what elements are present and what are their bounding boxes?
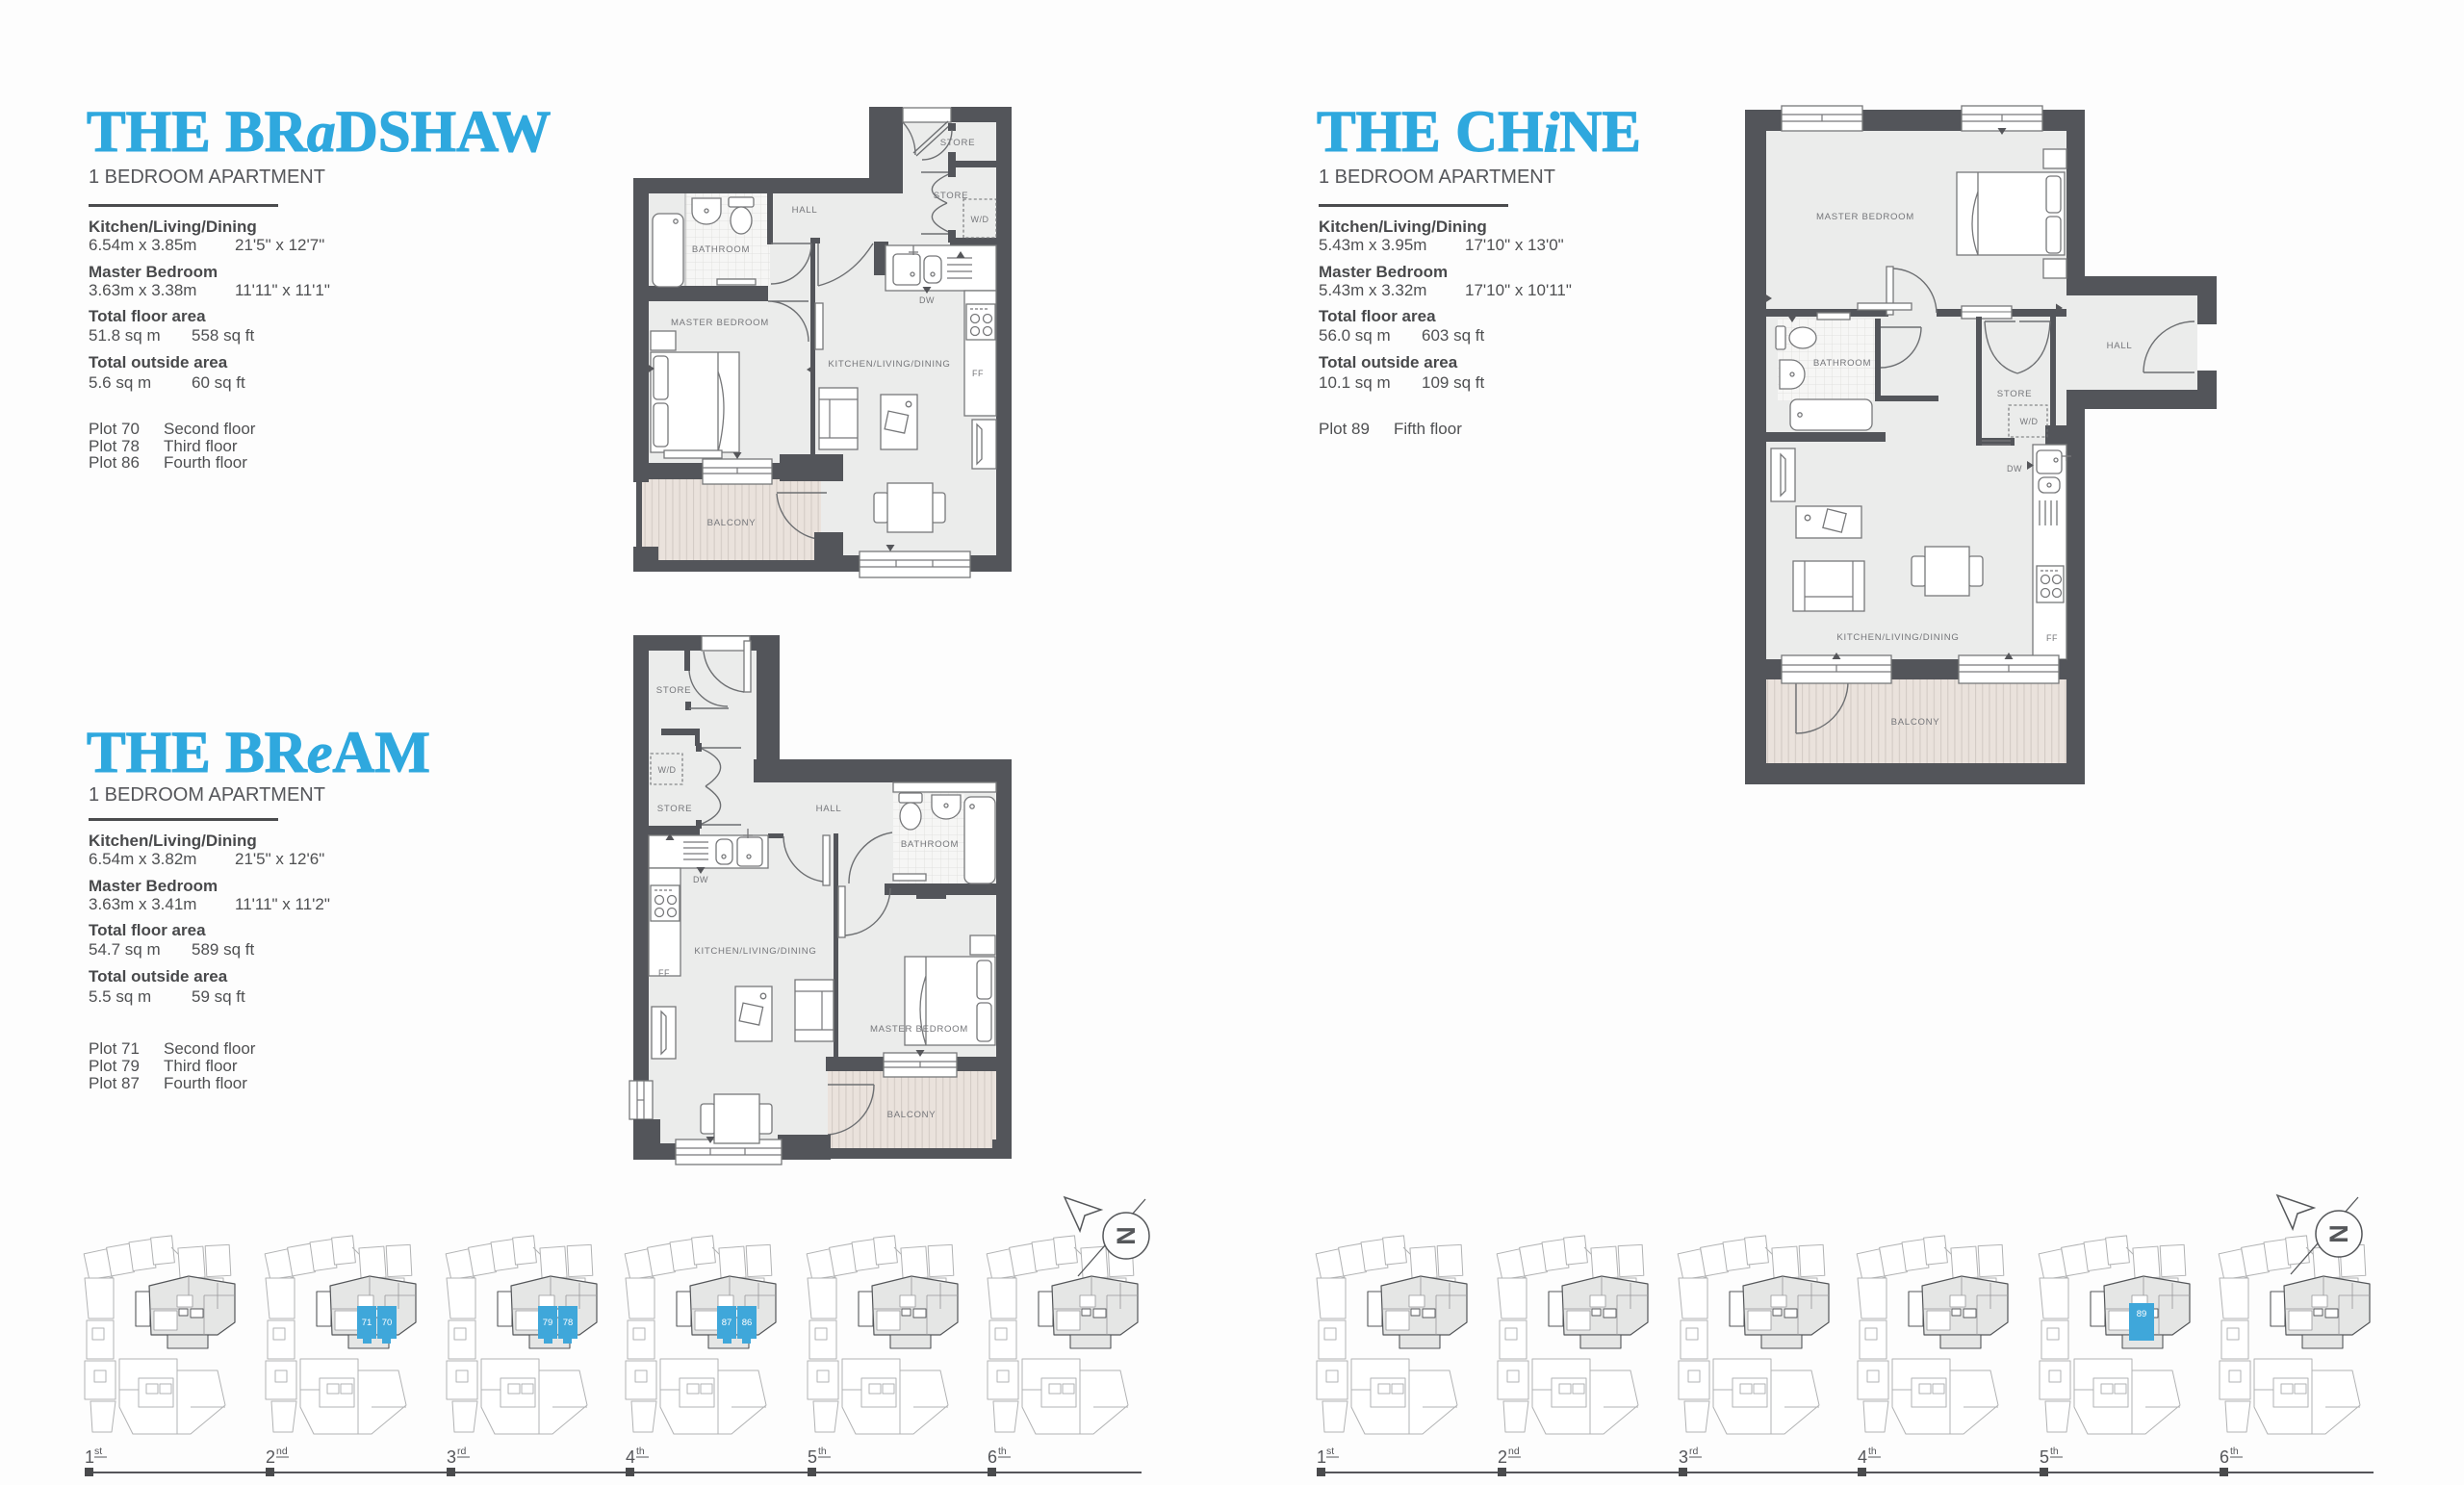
- svg-text:FF: FF: [2046, 633, 2058, 643]
- svg-text:th: th: [2230, 1446, 2239, 1457]
- svg-text:STORE: STORE: [657, 804, 692, 814]
- svg-text:STORE: STORE: [934, 191, 968, 201]
- svg-text:th: th: [998, 1446, 1007, 1457]
- svg-text:HALL: HALL: [2107, 341, 2133, 351]
- svg-text:STORE: STORE: [1997, 389, 2032, 399]
- svg-text:nd: nd: [1508, 1446, 1520, 1457]
- svg-text:5: 5: [808, 1447, 817, 1467]
- svg-text:rd: rd: [1689, 1446, 1698, 1457]
- svg-text:STORE: STORE: [656, 685, 691, 696]
- svg-text:BALCONY: BALCONY: [1891, 717, 1940, 728]
- svg-text:BATHROOM: BATHROOM: [901, 839, 959, 850]
- svg-text:2: 2: [266, 1447, 275, 1467]
- svg-text:nd: nd: [276, 1446, 288, 1457]
- svg-text:5: 5: [2040, 1447, 2049, 1467]
- svg-text:N: N: [2324, 1224, 2353, 1243]
- svg-text:W/D: W/D: [658, 765, 677, 775]
- svg-text:MASTER BEDROOM: MASTER BEDROOM: [1816, 212, 1914, 222]
- svg-text:3: 3: [1679, 1447, 1688, 1467]
- svg-text:DW: DW: [919, 295, 935, 305]
- svg-text:86: 86: [742, 1318, 753, 1328]
- svg-text:th: th: [2050, 1446, 2059, 1457]
- svg-text:6: 6: [988, 1447, 997, 1467]
- svg-text:W/D: W/D: [2020, 417, 2039, 426]
- svg-text:BATHROOM: BATHROOM: [692, 244, 750, 255]
- svg-text:th: th: [818, 1446, 827, 1457]
- svg-text:th: th: [1868, 1446, 1877, 1457]
- svg-text:FF: FF: [972, 369, 984, 378]
- svg-text:6: 6: [2220, 1447, 2229, 1467]
- svg-text:DW: DW: [2007, 464, 2022, 474]
- svg-text:st: st: [1326, 1446, 1334, 1457]
- svg-text:MASTER BEDROOM: MASTER BEDROOM: [671, 318, 769, 328]
- svg-text:th: th: [636, 1446, 645, 1457]
- svg-text:KITCHEN/LIVING/DINING: KITCHEN/LIVING/DINING: [1836, 632, 1959, 643]
- svg-text:rd: rd: [457, 1446, 466, 1457]
- svg-text:3: 3: [447, 1447, 456, 1467]
- svg-text:STORE: STORE: [940, 138, 975, 148]
- svg-text:st: st: [94, 1446, 102, 1457]
- svg-text:4: 4: [1858, 1447, 1867, 1467]
- svg-text:89: 89: [2137, 1309, 2147, 1319]
- svg-text:BATHROOM: BATHROOM: [1813, 358, 1871, 369]
- svg-text:71: 71: [362, 1318, 372, 1328]
- svg-text:1: 1: [1317, 1447, 1326, 1467]
- svg-text:70: 70: [382, 1318, 393, 1328]
- svg-text:BALCONY: BALCONY: [887, 1110, 937, 1120]
- svg-text:FF: FF: [658, 968, 670, 978]
- svg-text:79: 79: [543, 1318, 553, 1328]
- svg-text:KITCHEN/LIVING/DINING: KITCHEN/LIVING/DINING: [694, 946, 816, 957]
- svg-text:4: 4: [626, 1447, 635, 1467]
- svg-text:N: N: [1112, 1226, 1141, 1245]
- svg-text:78: 78: [563, 1318, 574, 1328]
- svg-text:87: 87: [722, 1318, 732, 1328]
- svg-text:HALL: HALL: [792, 205, 818, 216]
- svg-text:2: 2: [1498, 1447, 1507, 1467]
- svg-text:MASTER BEDROOM: MASTER BEDROOM: [870, 1024, 968, 1035]
- svg-text:DW: DW: [693, 875, 708, 884]
- svg-text:KITCHEN/LIVING/DINING: KITCHEN/LIVING/DINING: [828, 359, 950, 370]
- svg-text:HALL: HALL: [816, 804, 842, 814]
- svg-text:1: 1: [85, 1447, 94, 1467]
- svg-text:W/D: W/D: [971, 215, 989, 224]
- svg-text:BALCONY: BALCONY: [707, 518, 757, 528]
